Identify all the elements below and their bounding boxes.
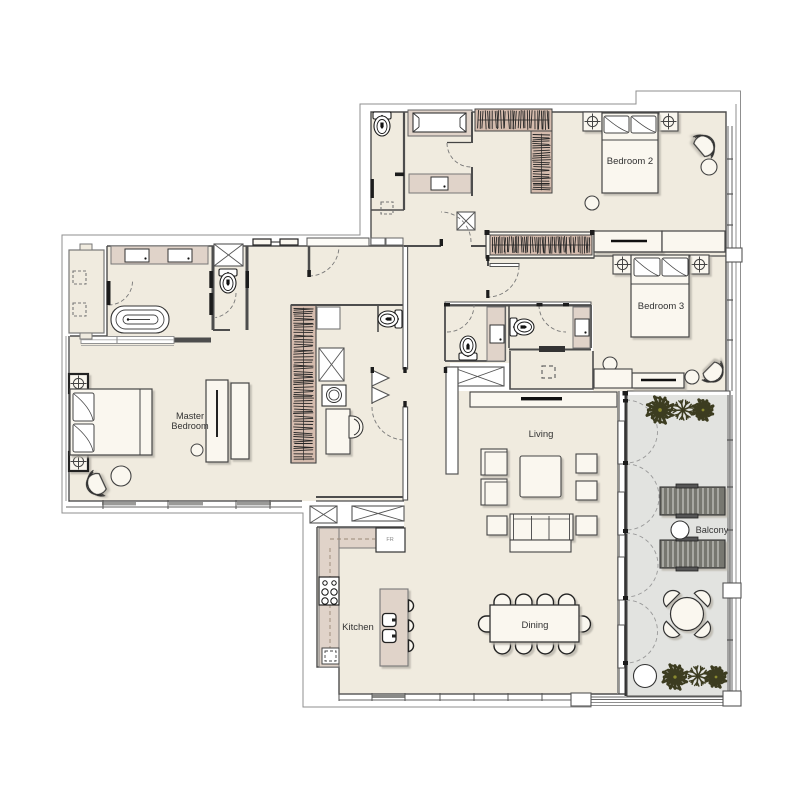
svg-text:Master: Master (176, 411, 204, 421)
svg-text:Dining: Dining (522, 620, 549, 631)
svg-text:Bedroom 2: Bedroom 2 (607, 156, 653, 167)
svg-text:Balcony: Balcony (696, 525, 729, 535)
svg-text:Living: Living (529, 429, 554, 440)
svg-text:Kitchen: Kitchen (342, 622, 374, 633)
svg-text:Bedroom 3: Bedroom 3 (638, 301, 684, 312)
svg-text:FR: FR (386, 537, 393, 543)
svg-text:Bedroom: Bedroom (171, 421, 209, 431)
